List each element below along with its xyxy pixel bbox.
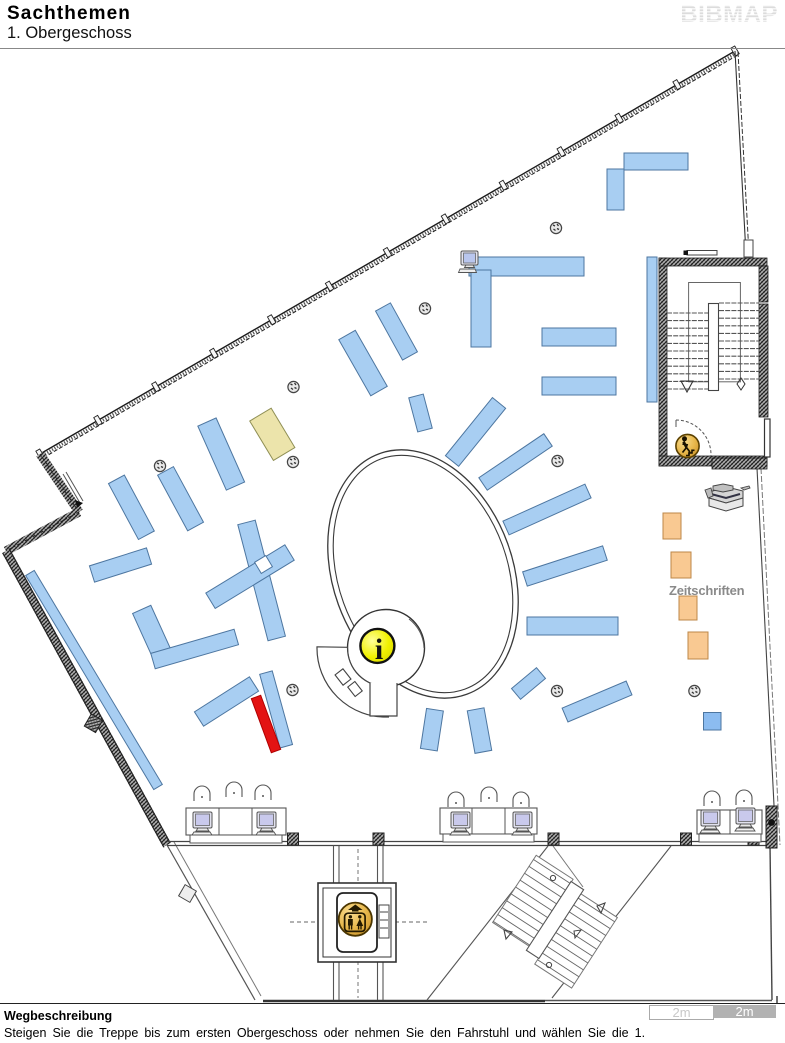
svg-text:i: i — [375, 633, 383, 666]
svg-text:Zeitschriften: Zeitschriften — [669, 583, 745, 598]
